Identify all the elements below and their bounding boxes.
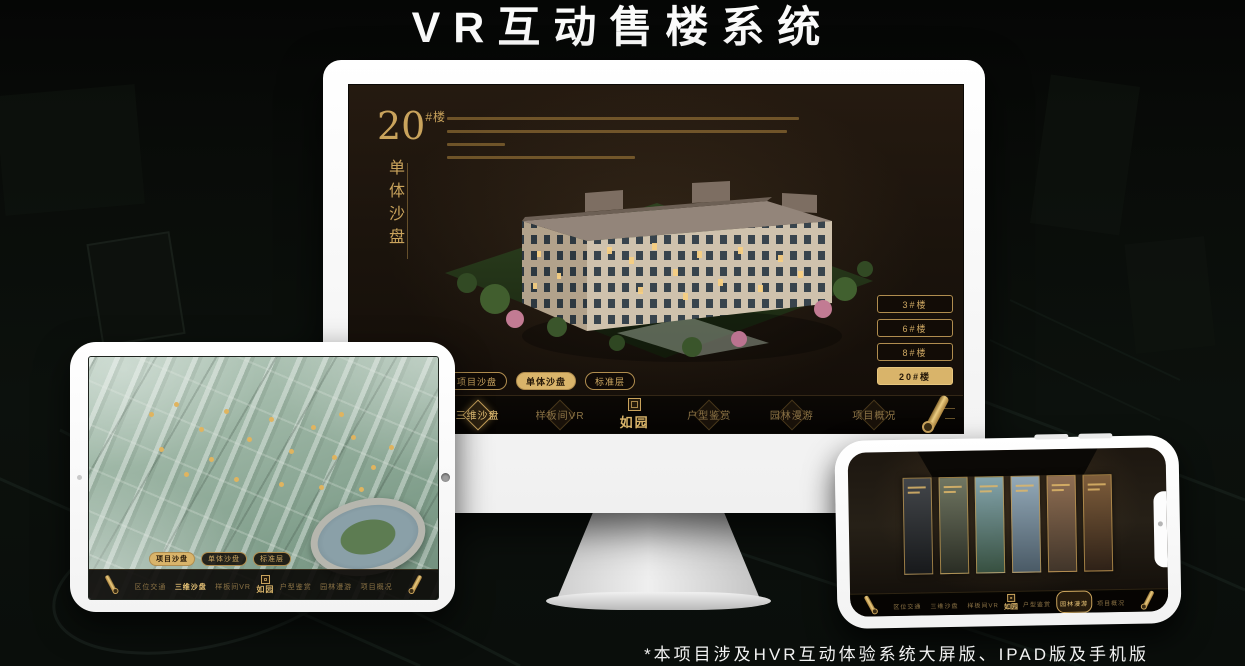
scene-panel-gate[interactable] bbox=[903, 477, 934, 574]
floor-selector: 3#楼 6#楼 8#楼 20#楼 bbox=[877, 295, 955, 391]
scene-panel-interior[interactable] bbox=[939, 477, 970, 574]
nav-item-label: 样板间VR bbox=[967, 603, 998, 610]
scroll-menu-icon-right[interactable] bbox=[407, 575, 425, 594]
scroll-spiral bbox=[922, 421, 934, 433]
scroll-menu-icon-left[interactable] bbox=[102, 575, 120, 594]
nav-item-garden-roam[interactable]: 园林漫游 bbox=[1056, 591, 1092, 614]
brand-logo-text: 如园 bbox=[620, 412, 650, 431]
scroll-spiral bbox=[408, 588, 414, 594]
phone-notch bbox=[1153, 491, 1167, 567]
scene-panels bbox=[903, 474, 1114, 575]
tab-label: 标准层 bbox=[595, 375, 625, 388]
scene-panel-building[interactable] bbox=[1011, 475, 1042, 572]
nav-item-showroom-vr[interactable]: 样板间VR bbox=[212, 574, 254, 596]
tab-label: 项目沙盘 bbox=[156, 554, 188, 564]
scroll-line bbox=[945, 418, 955, 419]
panel-caption bbox=[1016, 485, 1034, 495]
floor-button-label: 3#楼 bbox=[902, 298, 927, 311]
brand-logo-text: 如园 bbox=[1004, 602, 1018, 612]
scroll-menu-icon-left[interactable] bbox=[861, 596, 879, 615]
description-line bbox=[447, 143, 505, 146]
tab-label: 项目沙盘 bbox=[457, 375, 497, 388]
courtyard-roof-silhouette bbox=[918, 448, 1098, 477]
nav-item-project-overview[interactable]: 项目概况 bbox=[358, 574, 396, 596]
brand-logo: 如园 bbox=[256, 575, 274, 595]
nav-item-label: 项目概况 bbox=[852, 407, 896, 422]
nav-item-garden-roam[interactable]: 园林漫游 bbox=[754, 398, 830, 432]
seal-icon bbox=[261, 575, 270, 584]
floor-button-3[interactable]: 3#楼 bbox=[877, 295, 953, 313]
tab-single-sandbox[interactable]: 单体沙盘 bbox=[201, 552, 247, 566]
phone-screen: 区位交通 三维沙盘 样板间VR 如园 户型鉴赏 园林漫游 项目概况 bbox=[848, 447, 1169, 617]
floor-button-label: 6#楼 bbox=[902, 322, 927, 335]
building-number: 20 bbox=[377, 104, 425, 148]
floor-button-8[interactable]: 8#楼 bbox=[877, 343, 953, 361]
nav-item-label: 区位交通 bbox=[893, 605, 921, 611]
tablet-device: 项目沙盘 单体沙盘 标准层 区位交通 三维沙盘 样板间VR 如园 户型鉴赏 园林… bbox=[70, 342, 455, 612]
panel-caption bbox=[1052, 484, 1070, 494]
tablet-home-button[interactable] bbox=[441, 473, 450, 482]
floor-button-6[interactable]: 6#楼 bbox=[877, 319, 953, 337]
tablet-screen: 项目沙盘 单体沙盘 标准层 区位交通 三维沙盘 样板间VR 如园 户型鉴赏 园林… bbox=[88, 356, 439, 600]
tab-label: 单体沙盘 bbox=[208, 554, 240, 564]
tablet-sub-tabs: 项目沙盘 单体沙盘 标准层 bbox=[149, 552, 291, 566]
nav-item-location-traffic[interactable]: 区位交通 bbox=[889, 593, 925, 616]
nav-item-unit-gallery[interactable]: 户型鉴赏 bbox=[277, 574, 315, 596]
description-line bbox=[447, 117, 799, 120]
nav-item-label: 三维沙盘 bbox=[175, 584, 207, 591]
floor-button-20[interactable]: 20#楼 bbox=[877, 367, 953, 385]
page-title: VR互动售楼系统 bbox=[0, 0, 1245, 56]
nav-item-3d-sandbox[interactable]: 三维沙盘 bbox=[926, 593, 962, 616]
scroll-menu-icon[interactable] bbox=[919, 396, 955, 434]
phone-volume-button bbox=[1034, 434, 1068, 440]
nav-item-showroom-vr[interactable]: 样板间VR bbox=[963, 592, 1003, 615]
scene-panel-landscape[interactable] bbox=[975, 476, 1006, 573]
nav-item-label: 户型鉴赏 bbox=[687, 407, 731, 422]
nav-item-label: 园林漫游 bbox=[320, 584, 352, 591]
tab-project-sandbox[interactable]: 项目沙盘 bbox=[149, 552, 195, 566]
phone-front-camera bbox=[1158, 521, 1163, 526]
scroll-spiral bbox=[113, 588, 119, 594]
phone-nav-bar: 区位交通 三维沙盘 样板间VR 如园 户型鉴赏 园林漫游 项目概况 bbox=[850, 588, 1168, 617]
scroll-line bbox=[941, 408, 955, 409]
brand-logo-text: 如园 bbox=[256, 584, 274, 595]
tab-standard-floor[interactable]: 标准层 bbox=[253, 552, 291, 566]
building-render bbox=[437, 151, 877, 376]
headline-divider bbox=[407, 163, 408, 259]
panel-caption bbox=[908, 486, 926, 496]
tablet-camera bbox=[77, 475, 82, 480]
scroll-menu-icon-right[interactable] bbox=[1139, 591, 1157, 610]
phone-power-button bbox=[1078, 433, 1112, 439]
tab-single-sandbox[interactable]: 单体沙盘 bbox=[516, 372, 576, 390]
sandbox-sub-tabs: 项目沙盘 单体沙盘 标准层 bbox=[447, 372, 635, 390]
tab-label: 单体沙盘 bbox=[526, 375, 566, 388]
description-line bbox=[447, 130, 787, 133]
nav-item-label: 样板间VR bbox=[536, 407, 585, 422]
screen-title-vertical: 单体沙盘 bbox=[383, 159, 407, 251]
nav-item-label: 三维沙盘 bbox=[930, 604, 958, 610]
nav-item-project-overview[interactable]: 项目概况 bbox=[1093, 590, 1129, 613]
nav-item-unit-gallery[interactable]: 户型鉴赏 bbox=[1019, 591, 1055, 614]
tab-standard-floor[interactable]: 标准层 bbox=[585, 372, 635, 390]
building-headline: 20#楼 bbox=[377, 107, 446, 145]
scroll-spiral bbox=[1141, 604, 1147, 610]
nav-item-3d-sandbox[interactable]: 三维沙盘 bbox=[172, 574, 210, 596]
nav-item-label: 园林漫游 bbox=[1060, 602, 1088, 608]
nav-item-label: 三维沙盘 bbox=[456, 407, 500, 422]
floor-button-label: 20#楼 bbox=[899, 370, 931, 383]
nav-item-label: 园林漫游 bbox=[770, 407, 814, 422]
scene-panel-shelves[interactable] bbox=[1083, 474, 1114, 571]
building-number-markers bbox=[89, 357, 94, 362]
nav-item-project-overview[interactable]: 项目概况 bbox=[836, 398, 912, 432]
seal-icon bbox=[1007, 594, 1015, 602]
monitor-stand-base bbox=[546, 592, 771, 610]
brand-logo: 如园 bbox=[605, 398, 665, 431]
nav-item-showroom-vr[interactable]: 样板间VR bbox=[522, 398, 598, 432]
panel-caption bbox=[1088, 483, 1106, 493]
panel-caption bbox=[980, 485, 998, 495]
scroll-spiral bbox=[872, 608, 878, 614]
nav-item-garden-roam[interactable]: 园林漫游 bbox=[317, 574, 355, 596]
tablet-nav-bar: 区位交通 三维沙盘 样板间VR 如园 户型鉴赏 园林漫游 项目概况 bbox=[89, 569, 438, 599]
nav-item-label: 样板间VR bbox=[215, 584, 251, 591]
building-3d-viewport[interactable] bbox=[437, 151, 877, 376]
floor-button-label: 8#楼 bbox=[902, 346, 927, 359]
brand-logo: 如园 bbox=[1004, 594, 1018, 612]
panel-caption bbox=[944, 486, 962, 496]
nav-item-unit-gallery[interactable]: 户型鉴赏 bbox=[671, 398, 747, 432]
tab-label: 标准层 bbox=[260, 554, 284, 564]
nav-item-label: 户型鉴赏 bbox=[1023, 602, 1051, 608]
footnote-text: *本项目涉及HVR互动体验系统大屏版、IPAD版及手机版 bbox=[644, 640, 1149, 665]
seal-icon bbox=[628, 398, 641, 411]
phone-device: 区位交通 三维沙盘 样板间VR 如园 户型鉴赏 园林漫游 项目概况 bbox=[834, 435, 1181, 629]
nav-item-label: 项目概况 bbox=[1097, 601, 1125, 607]
nav-item-location-traffic[interactable]: 区位交通 bbox=[131, 574, 169, 596]
building-number-suffix: #楼 bbox=[425, 110, 446, 124]
nav-item-label: 区位交通 bbox=[134, 584, 166, 591]
nav-item-label: 户型鉴赏 bbox=[280, 584, 312, 591]
tab-project-sandbox[interactable]: 项目沙盘 bbox=[447, 372, 507, 390]
nav-item-label: 项目概况 bbox=[361, 584, 393, 591]
scene-panel-autumn[interactable] bbox=[1047, 475, 1078, 572]
